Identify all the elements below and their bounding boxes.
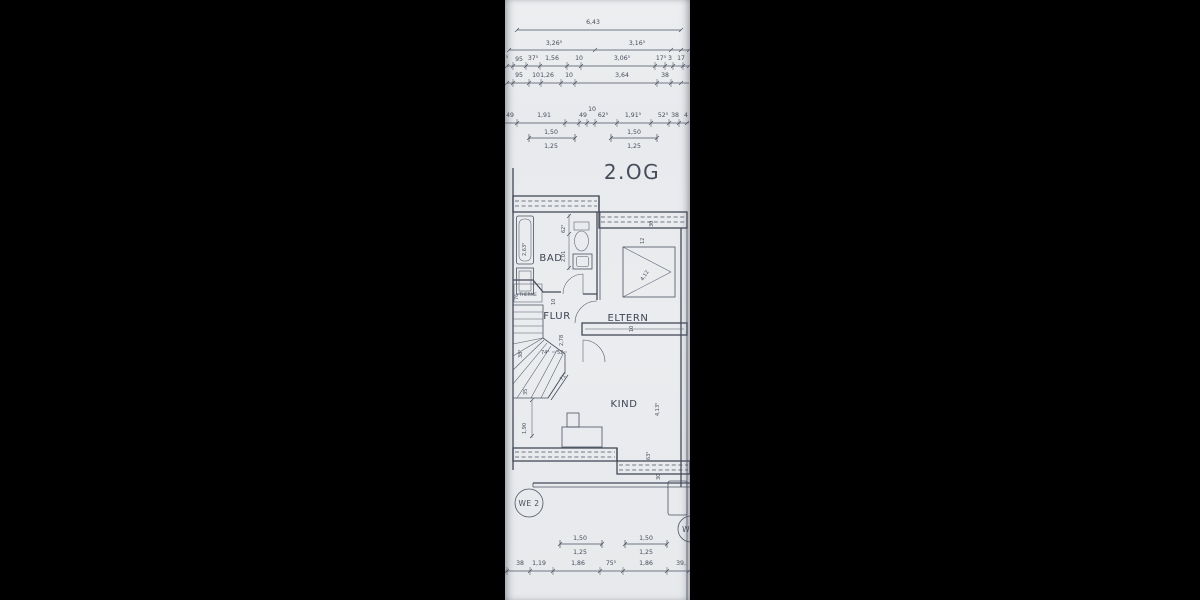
dim-left-height: 1,90 — [522, 423, 528, 434]
window-dim-outer: 1,50 — [639, 535, 653, 542]
window-dim-inner: 1,25 — [573, 549, 587, 556]
dimension-chain-top: 6,43 3,26⁵ 3,16⁵ ⁵ 95 37⁵ 1,56 10 3,06⁵ … — [505, 19, 690, 127]
window-dim-inner: 1,25 — [639, 549, 653, 556]
floorplan-svg: 6,43 3,26⁵ 3,16⁵ ⁵ 95 37⁵ 1,56 10 3,06⁵ … — [505, 0, 690, 600]
dim-row3-2: 1,56 — [545, 55, 559, 62]
dim-row4-3: 10 — [565, 72, 573, 79]
dim-kind-height: 4,13⁵ — [655, 403, 661, 416]
window-dims-bottom: 1,50 1,25 1,50 1,25 — [558, 535, 669, 556]
screenshot-stage: 6,43 3,26⁵ 3,16⁵ ⁵ 95 37⁵ 1,56 10 3,06⁵ … — [0, 0, 1200, 600]
dim-row5-2: 49 — [579, 112, 587, 119]
dim-row4-1: 10 — [532, 72, 540, 79]
kind-furniture — [562, 413, 602, 447]
dim-bottom-1: 1,19 — [532, 560, 546, 567]
dim-row5-8: 4 — [684, 112, 688, 119]
dim-row5-6: 52⁵ — [658, 112, 669, 119]
dim-bottom-3: 75⁵ — [606, 560, 617, 567]
plan-walls — [513, 168, 690, 600]
dim-bottom-2: 1,86 — [571, 560, 585, 567]
dim-row3-4: 3,06⁵ — [614, 55, 631, 62]
dim-therme-76: 76 — [514, 294, 520, 300]
dim-row5-0: 49 — [506, 112, 514, 119]
dim-row5-1: 1,91 — [537, 112, 551, 119]
dim-bad-width-a: 2,01 — [561, 251, 567, 262]
room-label-eltern: ELTERN — [608, 313, 649, 324]
dim-stair-71: 71⁵ — [559, 372, 569, 382]
dim-row2-1: 3,16⁵ — [629, 40, 646, 47]
dim-stair-38: 38⁵ — [518, 350, 524, 358]
dim-row5-4: 62⁵ — [598, 112, 609, 119]
dim-stair-35: 35 — [523, 389, 529, 395]
unit-badge-we2: WE 2 — [519, 499, 540, 508]
dim-flur-10: 10 — [551, 299, 557, 305]
window-dim-inner: 1,25 — [544, 143, 558, 150]
dim-row2-0: 3,26⁵ — [546, 40, 563, 47]
dim-tub-length: 2,63⁵ — [522, 243, 528, 256]
right-black-bar — [690, 0, 1200, 600]
floorplan-paper-strip: 6,43 3,26⁵ 3,16⁵ ⁵ 95 37⁵ 1,56 10 3,06⁵ … — [505, 0, 690, 600]
shower-fixture — [517, 268, 534, 294]
dim-bad-width-b: 62⁵ — [561, 225, 567, 233]
dim-row5-3: 10 — [588, 106, 596, 113]
dim-bottom-5: 39, — [676, 560, 686, 567]
dim-eltern-wall-10: 10 — [629, 326, 635, 332]
unit-badge-next: W — [682, 525, 690, 534]
dim-row3-prefix: ⁵ — [506, 55, 509, 62]
left-black-bar — [0, 0, 505, 600]
dim-row5-7: 38 — [671, 112, 679, 119]
room-label-flur: FLUR — [543, 311, 571, 322]
dim-flur-w-a: 74⁵ — [541, 350, 549, 356]
dim-row4-5: 38 — [661, 72, 669, 79]
dim-total: 6,43 — [586, 19, 600, 26]
dim-bottom-0: 38 — [516, 560, 524, 567]
room-label-therme: THERME — [518, 292, 537, 297]
dim-bottom-4: 1,86 — [639, 560, 653, 567]
dim-row5-5: 1,91⁵ — [625, 112, 642, 119]
toilet — [574, 222, 589, 251]
window-dim-outer: 1,50 — [544, 129, 558, 136]
dim-flur-w-b: 52 — [557, 350, 563, 356]
sink — [573, 254, 592, 269]
dim-row3-3: 10 — [575, 55, 583, 62]
dim-row3-1: 37⁵ — [528, 55, 539, 62]
window-dims-top: 1,50 1,25 1,50 1,25 — [527, 129, 659, 150]
dim-flur-height: 2,78 — [559, 335, 565, 346]
dim-kind-30: 30 — [656, 474, 662, 480]
window-dim-inner: 1,25 — [627, 143, 641, 150]
dim-row4-0: 95 — [515, 72, 523, 79]
dim-row4-2: 1,26 — [540, 72, 554, 79]
room-label-bad: BAD — [539, 253, 562, 264]
dim-wardrobe-diag: 4,12 — [640, 269, 651, 282]
dim-row4-4: 3,64 — [615, 72, 629, 79]
room-label-kind: KIND — [610, 399, 637, 410]
dim-eltern-30: 30 — [649, 221, 655, 227]
floor-level-label: 2.OG — [604, 160, 660, 184]
dim-eltern-12: 12 — [640, 238, 646, 244]
dim-row3-0: 95 — [515, 56, 523, 63]
dim-row3-7: 17 — [677, 55, 685, 62]
dim-row3-5: 17⁵ — [656, 55, 667, 62]
dim-row3-6: 3 — [668, 55, 672, 62]
dimension-chain-bottom: 38 1,19 1,86 75⁵ 1,86 39, — [505, 560, 690, 575]
dim-kind-63: 63⁵ — [646, 452, 652, 460]
window-dim-outer: 1,50 — [627, 129, 641, 136]
window-dim-outer: 1,50 — [573, 535, 587, 542]
